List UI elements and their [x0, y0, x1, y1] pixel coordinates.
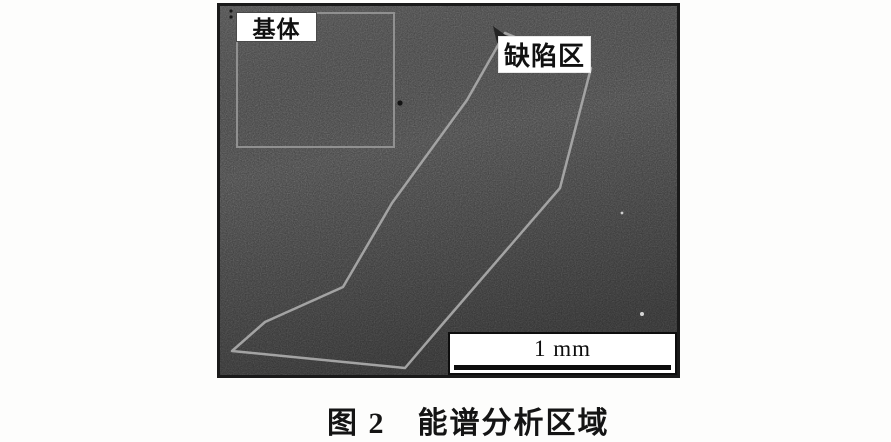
micrograph-canvas	[217, 3, 680, 378]
figure-caption: 图 2 能谱分析区域	[327, 398, 610, 442]
scale-bar-label: 1 mm	[450, 334, 675, 364]
speck	[229, 9, 232, 12]
scale-bar: 1 mm	[448, 332, 677, 375]
speck	[640, 312, 644, 316]
shading-overlay	[217, 3, 680, 378]
figure-page: { "figure": { "type": "sem-micrograph-fi…	[0, 0, 891, 440]
defect-label: 缺陷区	[498, 36, 591, 73]
sem-micrograph: 基体 缺陷区 1 mm	[217, 3, 680, 378]
speck	[621, 212, 624, 215]
matrix-label: 基体	[236, 12, 317, 42]
speck	[229, 15, 232, 18]
speck	[397, 100, 402, 105]
scale-bar-line	[454, 365, 671, 370]
